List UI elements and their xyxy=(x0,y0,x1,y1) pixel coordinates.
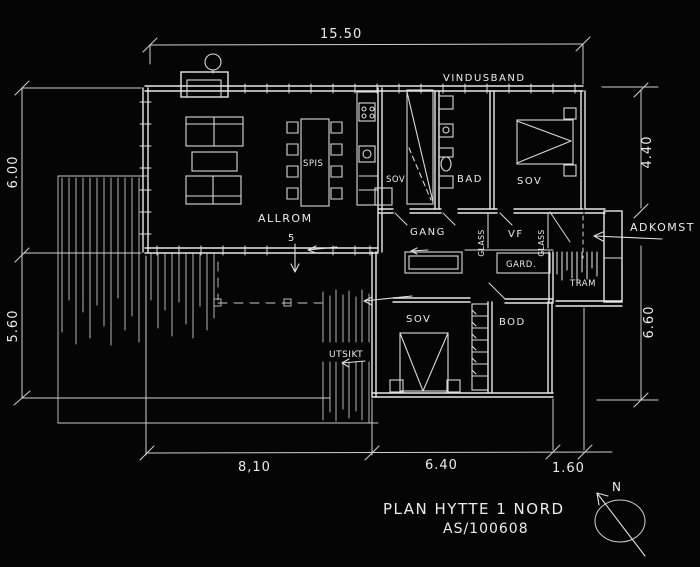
room-label-spis: SPIS xyxy=(303,159,323,169)
dim-left-upper-label: 6.00 xyxy=(6,156,21,189)
nightstand xyxy=(564,108,576,119)
bath-fixture xyxy=(439,96,453,109)
deck-terrace xyxy=(58,176,378,423)
bench-arrow xyxy=(411,248,428,254)
north-wall xyxy=(145,86,583,91)
east-wall xyxy=(581,91,585,209)
fireplace-inner xyxy=(187,80,221,97)
deck-hatch-west xyxy=(62,178,139,345)
dim-line-bottom xyxy=(147,452,612,453)
dim-bottom-right-label: 1.60 xyxy=(552,461,585,476)
glass-west-label: GLASS xyxy=(477,229,486,256)
allrom-east-wall xyxy=(378,88,382,252)
title-block: PLAN HYTTE 1 NORD AS/100608 N xyxy=(383,480,645,556)
bed-fold-lines xyxy=(400,333,448,391)
dim-top-label: 15.50 xyxy=(320,27,362,42)
bunk-diagonal-dashed xyxy=(409,148,431,200)
glass-east-label: GLASS xyxy=(537,229,546,256)
double-bed xyxy=(517,120,573,164)
nightstand xyxy=(564,165,576,176)
deck-hatch-south xyxy=(151,254,214,338)
sofa-lines xyxy=(186,117,243,146)
dim-right-lower-label: 6.60 xyxy=(642,306,657,339)
plan-signature: AS/100608 xyxy=(443,521,529,537)
sov-bod-wall xyxy=(488,302,492,393)
west-wall xyxy=(143,88,148,252)
door-leaf xyxy=(443,213,455,225)
porch-column xyxy=(604,211,622,302)
bunk-diagonal xyxy=(407,92,433,202)
bod-door-leaf xyxy=(489,283,505,299)
bad-sov-wall xyxy=(490,91,494,209)
north-label: N xyxy=(612,480,621,494)
bed-fold-lines xyxy=(517,121,571,163)
north-arrow-icon xyxy=(597,493,645,556)
north-compass-icon xyxy=(595,500,645,542)
hall-bench-inner xyxy=(409,256,458,269)
bath-sink-basin xyxy=(443,127,449,133)
dim-right-upper-label: 4.40 xyxy=(640,136,655,169)
entry-door-leaf xyxy=(550,212,570,242)
wing-south-wall xyxy=(372,393,553,397)
floor-plan-canvas: 15.50 6.00 5.60 8,10 6.40 1.60 4.40 6.60… xyxy=(0,0,700,567)
south-window-wall xyxy=(145,248,378,253)
corridor-north-wall xyxy=(378,209,583,213)
vindusband-label: VINDUSBAND xyxy=(443,73,526,84)
dim-bottom-left-label: 8,10 xyxy=(238,460,271,475)
room-label-tram: TRAM xyxy=(569,279,596,289)
bod-north-wall xyxy=(505,299,553,303)
plan-title: PLAN HYTTE 1 NORD xyxy=(383,500,565,518)
toilet-tank xyxy=(439,148,453,157)
deck-post xyxy=(214,299,221,306)
stove-burners xyxy=(362,107,374,118)
furniture xyxy=(186,90,597,392)
dim-bottom-middle-label: 6.40 xyxy=(425,458,458,473)
room-label-bad: BAD xyxy=(457,174,483,185)
closet-shelves xyxy=(472,304,488,390)
dim-ticks-left xyxy=(14,81,330,405)
deck-edge-dashed xyxy=(218,262,322,303)
bath-sink xyxy=(439,124,453,137)
deck-hatch-east-upper xyxy=(323,290,369,342)
dim-ticks-right xyxy=(597,83,658,407)
door-width-label: 5 xyxy=(288,233,296,244)
dim-line-top xyxy=(150,44,583,45)
sov-bad-wall xyxy=(435,91,439,209)
room-label-vf: VF xyxy=(508,229,524,240)
nightstand xyxy=(447,380,460,392)
utsikt-label: UTSIKT xyxy=(329,350,363,360)
door-leaf xyxy=(500,213,512,225)
deck-hatch-east-lower xyxy=(323,362,369,423)
kitchen-sink xyxy=(359,146,375,162)
toilet-bowl xyxy=(441,157,451,171)
room-label-sov-south: SOV xyxy=(406,314,431,325)
deck-post xyxy=(284,299,291,306)
bod-east-wall xyxy=(548,302,552,393)
hall-bench xyxy=(405,252,462,273)
sofa-lines xyxy=(186,176,241,204)
room-label-sov-small: SOV xyxy=(386,175,405,185)
porch-top-wall xyxy=(585,209,605,213)
closet-shelf-lines xyxy=(472,310,488,376)
adkomst-label: ADKOMST xyxy=(630,221,695,234)
coffee-table xyxy=(192,152,237,171)
room-label-gard: GARD. xyxy=(506,260,536,270)
room-label-gang: GANG xyxy=(410,227,446,238)
dim-ext-bottom xyxy=(146,256,584,455)
door-leaf xyxy=(395,213,407,225)
bath-fixture xyxy=(439,176,453,188)
walls xyxy=(140,84,622,397)
dim-left-lower-label: 5.60 xyxy=(6,310,21,343)
nightstand xyxy=(390,380,403,392)
double-bed-south xyxy=(400,333,448,391)
chimney-icon xyxy=(205,54,221,70)
room-label-bod: BOD xyxy=(499,317,526,328)
west-window-mullions xyxy=(140,102,151,234)
wing-west-wall xyxy=(372,252,376,397)
floor-plan-sketch: 15.50 6.00 5.60 8,10 6.40 1.60 4.40 6.60… xyxy=(0,0,700,567)
sov-south-north-wall xyxy=(393,298,470,302)
room-label-sov-master: SOV xyxy=(517,176,542,187)
sink-basin xyxy=(363,150,371,158)
room-label-allrom: ALLROM xyxy=(258,212,313,225)
